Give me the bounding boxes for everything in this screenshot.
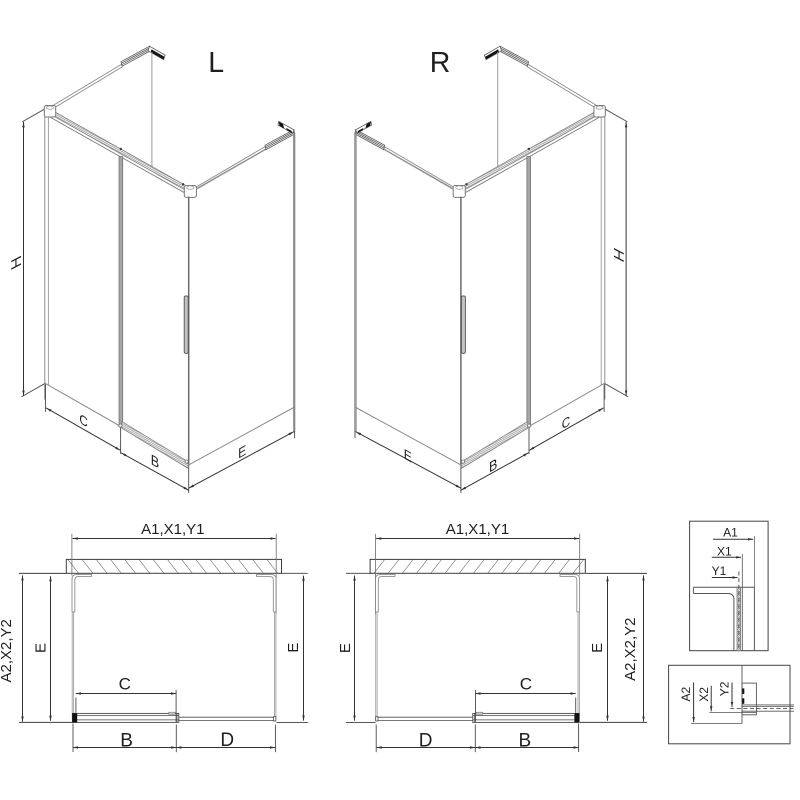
svg-text:Y1: Y1	[712, 564, 727, 578]
svg-text:A1,X1,Y1: A1,X1,Y1	[141, 521, 204, 538]
svg-text:A2,X2,Y2: A2,X2,Y2	[0, 619, 15, 682]
svg-text:X1: X1	[717, 544, 732, 558]
svg-text:A2,X2,Y2: A2,X2,Y2	[622, 618, 639, 681]
svg-text:R: R	[430, 47, 451, 79]
svg-text:B: B	[519, 730, 532, 751]
svg-text:E: E	[33, 643, 50, 653]
svg-text:D: D	[220, 730, 234, 751]
svg-text:A2: A2	[679, 687, 693, 702]
svg-text:A1: A1	[723, 525, 738, 539]
svg-text:Y2: Y2	[718, 681, 732, 696]
svg-text:E: E	[337, 643, 354, 653]
svg-text:C: C	[520, 674, 532, 693]
svg-text:C: C	[119, 674, 131, 693]
svg-text:E: E	[589, 643, 606, 653]
svg-text:D: D	[419, 730, 433, 751]
svg-text:L: L	[208, 47, 224, 79]
svg-text:A1,X1,Y1: A1,X1,Y1	[446, 521, 509, 538]
svg-text:E: E	[285, 643, 302, 653]
svg-text:B: B	[120, 730, 133, 751]
svg-text:X2: X2	[697, 687, 711, 702]
